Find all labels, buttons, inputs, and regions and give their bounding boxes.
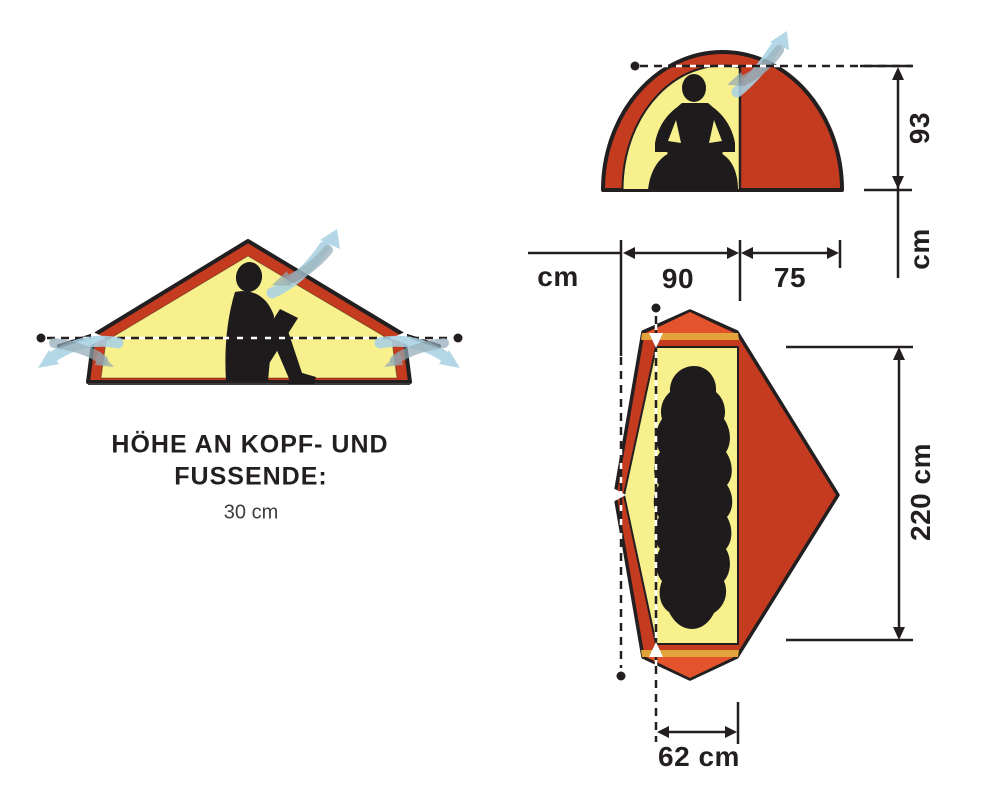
front-height-unit-label: cm (904, 228, 936, 269)
top-end-width-label: 62 cm (658, 741, 740, 773)
front-inner-width-label: 90 (662, 263, 694, 295)
reference-dot (617, 672, 626, 681)
side-view-tent (37, 229, 463, 384)
top-view-tent (611, 304, 838, 743)
front-width-unit-label: cm (537, 261, 578, 293)
side-caption-line1: HÖHE AN KOPF- UND (111, 431, 388, 460)
tent-dimensions-diagram: HÖHE AN KOPF- UND FUSSENDE: 30 cm cm 90 … (0, 0, 1000, 795)
front-view-tent (603, 31, 842, 190)
side-caption-line2: FUSSENDE: (174, 463, 327, 492)
diagram-graphics (0, 0, 1000, 795)
side-caption-value: 30 cm (224, 502, 278, 525)
front-inner-height-label: 93 (904, 112, 936, 144)
reference-dot (652, 304, 661, 313)
reference-dot (37, 334, 46, 343)
top-length-label: 220 cm (905, 443, 937, 541)
front-vestibule-width-label: 75 (774, 262, 806, 294)
sleeping-bag-silhouette (654, 366, 733, 629)
reference-dot (454, 334, 463, 343)
